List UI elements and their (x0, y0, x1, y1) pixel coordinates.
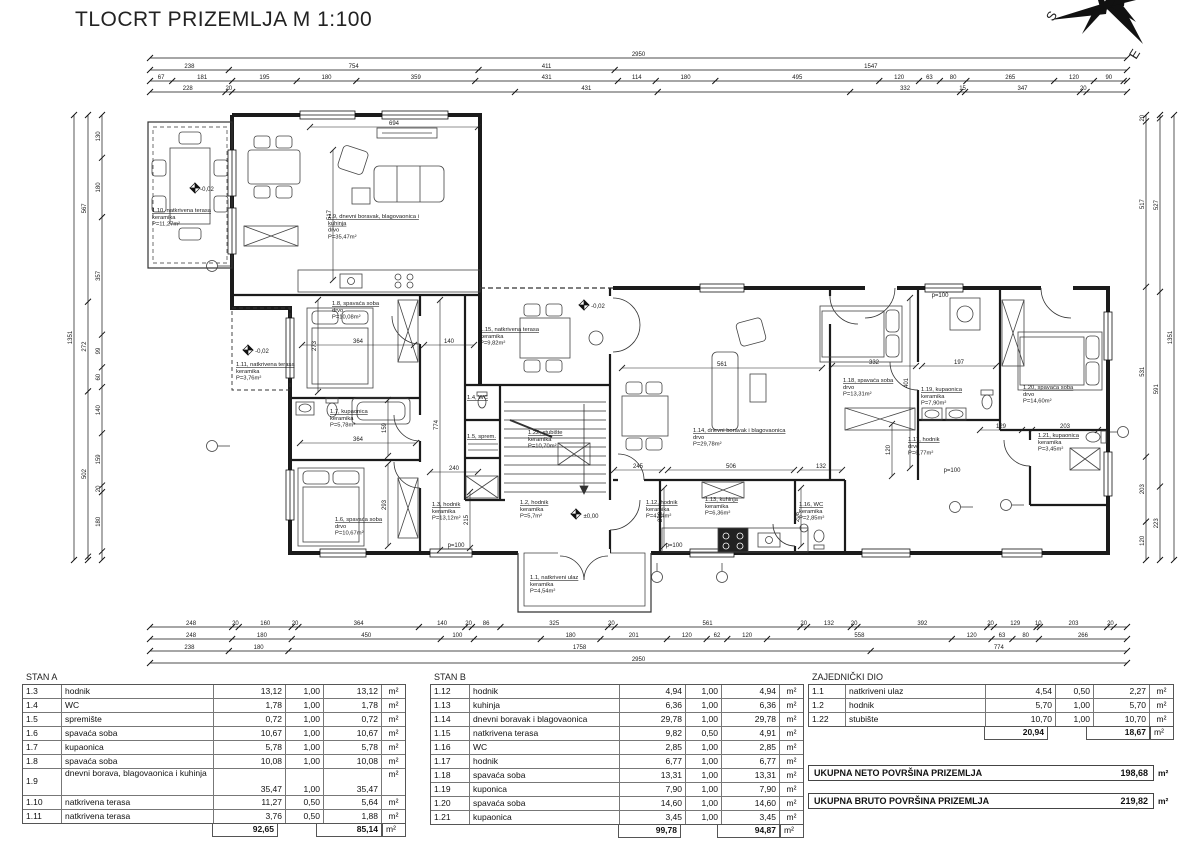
table-cell-num: 1,00 (1055, 699, 1093, 712)
dimension-value: 694 (389, 121, 400, 127)
table-cell-id: 1.5 (23, 713, 61, 726)
table-cell-name: WC (61, 699, 213, 712)
dimension-value: 99 (96, 347, 102, 354)
room-label-line: P=4,94m² (646, 514, 671, 520)
table-cell-unit: m² (381, 741, 405, 754)
table-cell-num: 10,70 (985, 713, 1055, 726)
dimension-value: 90 (1105, 75, 1112, 81)
table-cell-num: 0,72 (213, 713, 285, 726)
plan-annotation: p=100 (932, 293, 950, 299)
table-cell-num: 14,60 (721, 797, 779, 810)
dimension-value: 132 (816, 464, 827, 470)
table-total-row: 20,9418,67m² (808, 726, 1174, 740)
room-label: 1.14, dnevni boravak i blagovaonicadrvoP… (693, 428, 786, 448)
wardrobe (845, 408, 915, 430)
table-cell-num: 4,91 (721, 727, 779, 740)
window (700, 284, 744, 292)
dimension-value: 180 (96, 516, 102, 527)
furniture (152, 128, 1106, 552)
dimension-value: 20 (800, 621, 807, 627)
table-cell-num: 1,88 (323, 810, 381, 823)
room-label-line: P=11,27m² (152, 222, 180, 228)
total-gross-unit: m² (1158, 796, 1168, 806)
table-cell-name: spremište (61, 713, 213, 726)
dining-table (520, 304, 603, 372)
dimension-chain: 2482016020364140208632520561201322039220… (147, 621, 1130, 630)
table-cell-num: 1,00 (285, 727, 323, 740)
table-cell-num: 10,67 (213, 727, 285, 740)
room-label: 1.2, hodnikkeramikaP=5,7m² (520, 500, 548, 520)
dimension-value: 364 (353, 437, 364, 443)
total-area: 99,78 (618, 824, 681, 838)
dimension-value: 272 (82, 341, 88, 352)
dimension-value: 120 (967, 633, 978, 639)
table-cell-id: 1.16 (431, 741, 469, 754)
washing-machine (950, 298, 980, 330)
table-cell-num: 35,47 (323, 769, 381, 795)
window (300, 111, 355, 119)
dimension-chain: 1351 (1168, 112, 1177, 563)
marker-circle (207, 441, 231, 452)
total-unit: m² (382, 823, 406, 837)
tv-cabinet (377, 128, 437, 138)
table-cell-num: 4,54 (985, 685, 1055, 698)
dimension-value: 392 (917, 621, 928, 627)
plan-dimension: 140 (421, 339, 477, 348)
table-row: 1.13kuhinja6,361,006,36m² (431, 698, 803, 712)
plan-dimension: 293 (382, 461, 391, 549)
table-cell-num: 3,45 (721, 811, 779, 824)
table-cell-id: 1.13 (431, 699, 469, 712)
table-cell-num: 5,78 (213, 741, 285, 754)
table-cell-name: hodnik (61, 685, 213, 698)
dimension-value: 180 (322, 75, 333, 81)
table-cell-num: 3,76 (213, 810, 285, 823)
dimension-value: 180 (681, 75, 692, 81)
room-label-line: P=6,77m² (908, 451, 933, 457)
table-cell-num: 9,82 (619, 727, 685, 740)
table-cell-id: 1.14 (431, 713, 469, 726)
room-label-line: P=3,76m² (236, 376, 261, 382)
table-cell-unit: m² (381, 755, 405, 768)
room-label-line: keramika (528, 437, 552, 443)
table-cell-name: natkrivena terasa (61, 796, 213, 809)
table-title: ZAJEDNIČKI DIO (812, 672, 1174, 682)
window (1002, 549, 1042, 557)
table-cell-num: 6,77 (721, 755, 779, 768)
table-cell-unit: m² (381, 713, 405, 726)
table-cell-num: 1,00 (685, 811, 721, 824)
table-cell-num: 5,64 (323, 796, 381, 809)
table-cell-num: 4,94 (721, 685, 779, 698)
room-label-line: 1.15, natkrivena terasa (480, 327, 540, 333)
total-net-unit: m² (1158, 768, 1168, 778)
wall-left-bottom (232, 115, 518, 553)
sofa (337, 145, 444, 204)
window (925, 284, 963, 292)
table-row: 1.15natkrivena terasa9,820,504,91m² (431, 726, 803, 740)
dimension-value: 411 (542, 64, 552, 70)
table-cell-num: 35,47 (213, 769, 285, 795)
table-cell-num: 13,12 (213, 685, 285, 698)
table-cell-unit: m² (381, 810, 405, 823)
table-cell-num: 0,50 (285, 810, 323, 823)
dimension-value: 502 (82, 468, 88, 479)
plan-annotation: -0,02 (200, 187, 214, 193)
table-row: 1.11natkrivena terasa3,760,501,88m² (23, 809, 405, 823)
plan-dimension: 332 (829, 360, 919, 369)
table-cell-num: 2,85 (619, 741, 685, 754)
table-cell-num: 4,94 (619, 685, 685, 698)
dimension-chain: 6718119518035943111418049512063802651209… (147, 75, 1130, 84)
total-net: 18,67 (1086, 726, 1150, 740)
dimension-value: 228 (183, 86, 194, 92)
table-cell-num: 1,00 (685, 769, 721, 782)
table-cell-name: stubište (845, 713, 985, 726)
dimension-value: 181 (197, 75, 208, 81)
table-cell-num: 1,00 (285, 769, 323, 795)
table-cell-id: 1.22 (809, 713, 845, 726)
table-cell-id: 1.17 (431, 755, 469, 768)
table-cell-name: spavaća soba (61, 755, 213, 768)
window (430, 549, 472, 557)
room-label-line: 1.10, natkrivena terasa (152, 208, 212, 214)
dimension-value: 248 (186, 621, 197, 627)
plan-dimension: 561 (619, 362, 825, 371)
table-cell-num: 13,31 (721, 769, 779, 782)
room-label-line: P=10,08m² (332, 315, 361, 321)
plan-dimension: 245 (611, 464, 665, 473)
dimension-value: 197 (954, 360, 965, 366)
plan-annotation: p=100 (666, 543, 684, 549)
marker-circle (1001, 500, 1025, 511)
table-row: 1.16WC2,851,002,85m² (431, 740, 803, 754)
table-cell-name: natkrivena terasa (61, 810, 213, 823)
dimension-value: 20 (608, 621, 615, 627)
plan-dimension: 694 (307, 121, 481, 130)
window (286, 318, 294, 378)
plan-dimension: 506 (665, 464, 797, 473)
windows (228, 111, 1112, 557)
marker-circle (207, 261, 231, 272)
dimension-value: 517 (1140, 198, 1146, 209)
dimension-value: 1758 (573, 645, 587, 651)
table-cell-unit: m² (779, 797, 803, 810)
dimension-chain: 20517531203120 (1140, 112, 1149, 563)
room-label: 1.19, kupaonicakeramikaP=7,90m² (921, 387, 963, 407)
dimension-value: 359 (411, 75, 422, 81)
dimension-value: 567 (82, 203, 88, 214)
room-label-line: P=5,7m² (520, 514, 542, 520)
room-label-line: 1.14, dnevni boravak i blagovaonica (693, 428, 786, 434)
dimension-value: 114 (632, 75, 642, 81)
table-cell-id: 1.15 (431, 727, 469, 740)
dimension-value: 120 (1069, 75, 1080, 81)
table-row: 1.6spavaća soba10,671,0010,67m² (23, 726, 405, 740)
dimension-value: 401 (904, 377, 910, 388)
dimension-value: 60 (96, 373, 102, 380)
dimension-value: 20 (232, 621, 239, 627)
table-cell-name: dnevni borava, blagovaonica i kuhinja (61, 769, 213, 795)
dimension-value: 180 (257, 633, 268, 639)
room-label-line: 1.4, WC (467, 395, 488, 401)
table-cell-num: 29,78 (721, 713, 779, 726)
table-cell-num: 5,70 (1093, 699, 1149, 712)
dimension-value: 558 (854, 633, 865, 639)
total-net-area-bar: UKUPNA NETO POVRŠINA PRIZEMLJA 198,68 m² (808, 765, 1168, 781)
room-label-line: drvo (693, 435, 704, 441)
room-label-line: drvo (908, 444, 919, 450)
table-cell-num: 1,00 (1055, 713, 1093, 726)
table-cell-num: 2,85 (721, 741, 779, 754)
table-cell-num: 6,36 (619, 699, 685, 712)
table-cell-num: 14,60 (619, 797, 685, 810)
window (286, 470, 294, 520)
table-cell-id: 1.21 (431, 811, 469, 824)
dimension-value: 129 (1010, 621, 1021, 627)
dimension-value: 20 (1107, 621, 1114, 627)
total-gross-area-bar: UKUPNA BRUTO POVRŠINA PRIZEMLJA 219,82 m… (808, 793, 1168, 809)
plan-annotation: -0,02 (591, 304, 605, 310)
room-label-line: 1.6, spavaća soba (335, 517, 383, 523)
room-label-line: P=10,67m² (335, 531, 364, 537)
dimension-value: 20 (292, 621, 299, 627)
shelves (468, 444, 498, 450)
room-label: 1.5, sprem. (467, 434, 496, 440)
plan-dimension: 129 (977, 424, 1025, 433)
window (1104, 452, 1112, 496)
dimension-value: 431 (542, 75, 553, 81)
room-label: 1.12, hodnikkeramikaP=4,94m² (646, 500, 678, 520)
room-label-line: P=35,47m² (328, 234, 357, 240)
table-cell-num: 1,00 (285, 685, 323, 698)
total-net: 85,14 (316, 823, 382, 837)
dimension-value: 1547 (864, 64, 878, 70)
dimension-value: 2950 (632, 52, 646, 58)
dimension-value: 20 (1140, 114, 1146, 121)
table-cell-num: 1,00 (685, 741, 721, 754)
dimension-value: 2950 (632, 657, 646, 663)
table-row: 1.21kupaonica3,451,003,45m² (431, 810, 803, 824)
dimension-value: 774 (994, 645, 1005, 651)
room-label-line: 1.11, natkrivena terasa (236, 362, 295, 368)
dimension-chain: 527591223 (1154, 112, 1163, 563)
dimension-value: 1351 (68, 330, 74, 344)
table-cell-num: 1,00 (285, 713, 323, 726)
room-label-line: 1.16, WC (799, 502, 823, 508)
total-net-value: 198,68 (1120, 768, 1148, 778)
table-cell-num: 1,00 (285, 755, 323, 768)
sink (946, 408, 966, 420)
toilet (1086, 431, 1106, 443)
sink (922, 408, 942, 420)
dimension-value: 132 (824, 621, 835, 627)
room-label: 1.17, hodnikdrvoP=6,77m² (908, 437, 940, 457)
table-cell-unit: m² (381, 685, 405, 698)
table-cell-num: 1,00 (685, 699, 721, 712)
room-label-line: P=13,12m² (432, 516, 461, 522)
door-arc (1041, 288, 1071, 318)
room-label-line: 1.13, kuhinja (705, 497, 739, 503)
window (1104, 312, 1112, 360)
room-label-line: 1.12, hodnik (646, 500, 678, 506)
table-cell-id: 1.11 (23, 810, 61, 823)
marker-circle (717, 563, 728, 583)
table-cell-name: hodnik (845, 699, 985, 712)
dimension-chain: 2950 (147, 657, 1130, 666)
level-marker (579, 300, 589, 310)
room-label-line: keramika (520, 507, 544, 513)
table-cell-unit: m² (779, 713, 803, 726)
compass-rose-icon: S E (1043, 0, 1160, 62)
table-cell-name: natkrivena terasa (469, 727, 619, 740)
room-label-line: P=4,54m² (530, 589, 555, 595)
sink (296, 402, 314, 415)
dimension-value: 159 (382, 422, 388, 433)
kitchen-counter (298, 270, 480, 292)
table-cell-unit: m² (1149, 699, 1173, 712)
dimension-value: 238 (184, 64, 195, 70)
dimension-value: 203 (1060, 424, 1071, 430)
dimension-value: 120 (886, 444, 892, 455)
table-cell-name: spavaća soba (61, 727, 213, 740)
wall-stan-a-top-right (232, 115, 480, 288)
dimension-value: 140 (444, 339, 455, 345)
dimension-value: 531 (1140, 366, 1146, 377)
table-row: 1.9dnevni borava, blagovaonica i kuhinja… (23, 768, 405, 795)
door-arc (392, 316, 420, 344)
room-label: 1.13, kuhinjakeramikaP=6,36m² (705, 497, 739, 517)
wardrobe (466, 476, 498, 498)
dimension-value: 130 (96, 131, 102, 142)
floor-plan-svg: S E (0, 0, 1200, 670)
table-cell-name: kupaonica (469, 811, 619, 824)
dimension-value: 561 (703, 621, 714, 627)
dimension-value: 140 (437, 621, 448, 627)
table-cell-id: 1.7 (23, 741, 61, 754)
room-label-line: 1.22, stubište (528, 430, 562, 436)
table-cell-num: 1,00 (685, 783, 721, 796)
table-cell-num: 1,00 (685, 755, 721, 768)
table-cell-num: 13,12 (323, 685, 381, 698)
kitchen-island (244, 226, 298, 246)
window (862, 549, 910, 557)
dimension-value: 506 (726, 464, 737, 470)
dimension-value: 100 (452, 633, 463, 639)
room-label-line: P=2,85m² (799, 516, 824, 522)
plan-dimension: 203 (1029, 424, 1101, 433)
table-cell-num: 10,08 (213, 755, 285, 768)
table-cell-id: 1.10 (23, 796, 61, 809)
room-label-line: drvo (335, 524, 346, 530)
table-cell-id: 1.9 (23, 769, 61, 795)
level-marker (571, 509, 581, 519)
room-label-line: keramika (705, 504, 729, 510)
room-label-line: P=10,70m² (528, 444, 557, 450)
dimension-value: 159 (96, 454, 102, 465)
wardrobe (398, 478, 418, 538)
dimension-value: 120 (894, 75, 905, 81)
room-label: 1.7, kupaonicakeramikaP=5,78m² (330, 409, 368, 429)
door-arc (584, 556, 608, 580)
plan-dimension: 197 (919, 360, 999, 369)
total-area: 92,65 (212, 823, 278, 837)
dimension-value: 245 (633, 464, 644, 470)
window (320, 549, 366, 557)
table-cell-unit: m² (779, 741, 803, 754)
dimension-value: 20 (465, 621, 472, 627)
marker-circle (950, 502, 974, 513)
dimension-value: 347 (1018, 86, 1029, 92)
room-label-line: 1.2, hodnik (520, 500, 548, 506)
table-cell-num: 0,50 (1055, 685, 1093, 698)
dimension-value: 1351 (1168, 330, 1174, 344)
level-marker (190, 183, 200, 193)
table-cell-name: WC (469, 741, 619, 754)
dimension-value: 129 (996, 424, 1007, 430)
table-cell-num: 2,27 (1093, 685, 1149, 698)
wardrobe (398, 300, 418, 362)
room-label: 1.1, natkriveni ulazkeramikaP=4,54m² (530, 575, 578, 595)
dimension-value: 293 (382, 499, 388, 510)
table-row: 1.1natkriveni ulaz4,540,502,27m² (809, 685, 1173, 698)
table-cell-unit: m² (779, 755, 803, 768)
table-cell-num: 1,00 (685, 797, 721, 810)
table-cell-num: 1,78 (213, 699, 285, 712)
plan-annotation: -0,02 (255, 349, 269, 355)
room-label-line: 1.17, hodnik (908, 437, 940, 443)
dimension-value: 63 (926, 75, 933, 81)
room-label-line: 1.1, natkriveni ulaz (530, 575, 578, 581)
marker-circle (652, 563, 663, 583)
door-arc (610, 500, 640, 530)
table-cell-num: 5,70 (985, 699, 1055, 712)
window (382, 111, 448, 119)
table-title: STAN B (434, 672, 804, 682)
dimension-value: 238 (184, 645, 195, 651)
bed (1018, 332, 1102, 390)
table-cell-num: 1,00 (685, 685, 721, 698)
dining-table (248, 136, 300, 198)
dimension-value: 450 (361, 633, 372, 639)
table-cell-id: 1.20 (431, 797, 469, 810)
kitchen-counter (662, 528, 808, 552)
room-label-line: drvo (843, 385, 854, 391)
room-label-line: P=9,82m² (480, 341, 505, 347)
room-label-line: drvo (328, 228, 339, 234)
marker-circle (1110, 427, 1129, 438)
total-area: 20,94 (984, 726, 1048, 740)
dimension-chain: 2387544111547 (147, 64, 1130, 73)
table-cell-num: 0,72 (323, 713, 381, 726)
floor-plan-page: TLOCRT PRIZEMLJA M 1:100 S E (0, 0, 1200, 845)
table-cell-name: natkriveni ulaz (845, 685, 985, 698)
room-label: 1.15, natkrivena terasakeramikaP=9,82m² (480, 327, 540, 347)
plan-annotation: p=100 (944, 468, 962, 474)
table-cell-num: 5,78 (323, 741, 381, 754)
table-cell-name: hodnik (469, 685, 619, 698)
table-title: STAN A (26, 672, 406, 682)
table-row: 1.4WC1,781,001,78m² (23, 698, 405, 712)
room-label-line: keramika (1038, 440, 1062, 446)
room-label-line: keramika (921, 394, 945, 400)
table-cell-num: 6,77 (619, 755, 685, 768)
table-cell-num: 7,90 (721, 783, 779, 796)
room-label-line: drvo (1023, 392, 1034, 398)
table-cell-unit: m² (381, 796, 405, 809)
table-row: 1.3hodnik13,121,0013,12m² (23, 685, 405, 698)
table-row: 1.17hodnik6,771,006,77m² (431, 754, 803, 768)
